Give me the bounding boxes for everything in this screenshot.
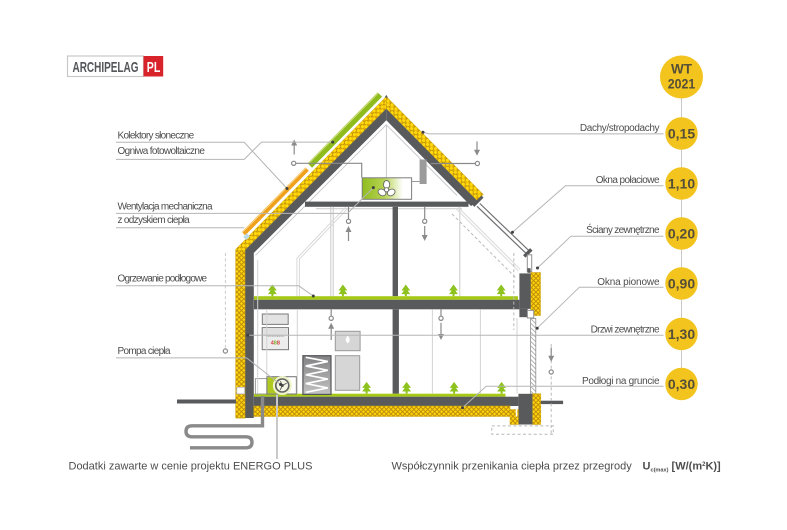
svg-text:0,90: 0,90 bbox=[668, 276, 695, 292]
svg-text:Uc(max) [W/(m2K)]: Uc(max) [W/(m2K)] bbox=[643, 461, 722, 474]
svg-text:Wentylacja mechaniczna: Wentylacja mechaniczna bbox=[118, 202, 213, 213]
svg-text:0,20: 0,20 bbox=[668, 226, 695, 242]
svg-text:Dodatki zawarte w cenie projek: Dodatki zawarte w cenie projektu ENERGO … bbox=[69, 461, 313, 473]
svg-text:z odzyskiem ciepła: z odzyskiem ciepła bbox=[118, 215, 191, 226]
svg-text:Okna połaciowe: Okna połaciowe bbox=[596, 175, 660, 186]
svg-text:ARCHIPELAG: ARCHIPELAG bbox=[266, 334, 285, 338]
svg-text:Współczynnik przenikania ciepł: Współczynnik przenikania ciepła przez pr… bbox=[392, 461, 633, 473]
svg-text:1,30: 1,30 bbox=[668, 326, 695, 342]
svg-text:Ogrzewanie podłogowe: Ogrzewanie podłogowe bbox=[118, 274, 208, 285]
svg-text:Ściany zewnętrzne: Ściany zewnętrzne bbox=[586, 223, 660, 236]
svg-text:Ogniwa fotowoltaiczne: Ogniwa fotowoltaiczne bbox=[118, 146, 206, 157]
svg-text:Kolektory słoneczne: Kolektory słoneczne bbox=[118, 131, 195, 142]
svg-text:2021: 2021 bbox=[668, 77, 696, 92]
svg-text:1,10: 1,10 bbox=[668, 176, 695, 192]
svg-text:0,15: 0,15 bbox=[668, 126, 695, 142]
svg-text:ARCHIPELAG: ARCHIPELAG bbox=[73, 59, 139, 76]
svg-text:0,30: 0,30 bbox=[668, 376, 695, 392]
svg-text:Drzwi zewnętrzne: Drzwi zewnętrzne bbox=[591, 325, 660, 336]
svg-text:488: 488 bbox=[271, 341, 280, 347]
svg-text:Podłogi na gruncie: Podłogi na gruncie bbox=[582, 376, 660, 387]
svg-text:WT: WT bbox=[671, 62, 693, 77]
svg-text:PL: PL bbox=[147, 59, 161, 76]
svg-text:Okna pionowe: Okna pionowe bbox=[597, 277, 660, 288]
svg-text:Pompa ciepła: Pompa ciepła bbox=[118, 346, 172, 357]
svg-text:Dachy/stropodachy: Dachy/stropodachy bbox=[580, 123, 660, 134]
